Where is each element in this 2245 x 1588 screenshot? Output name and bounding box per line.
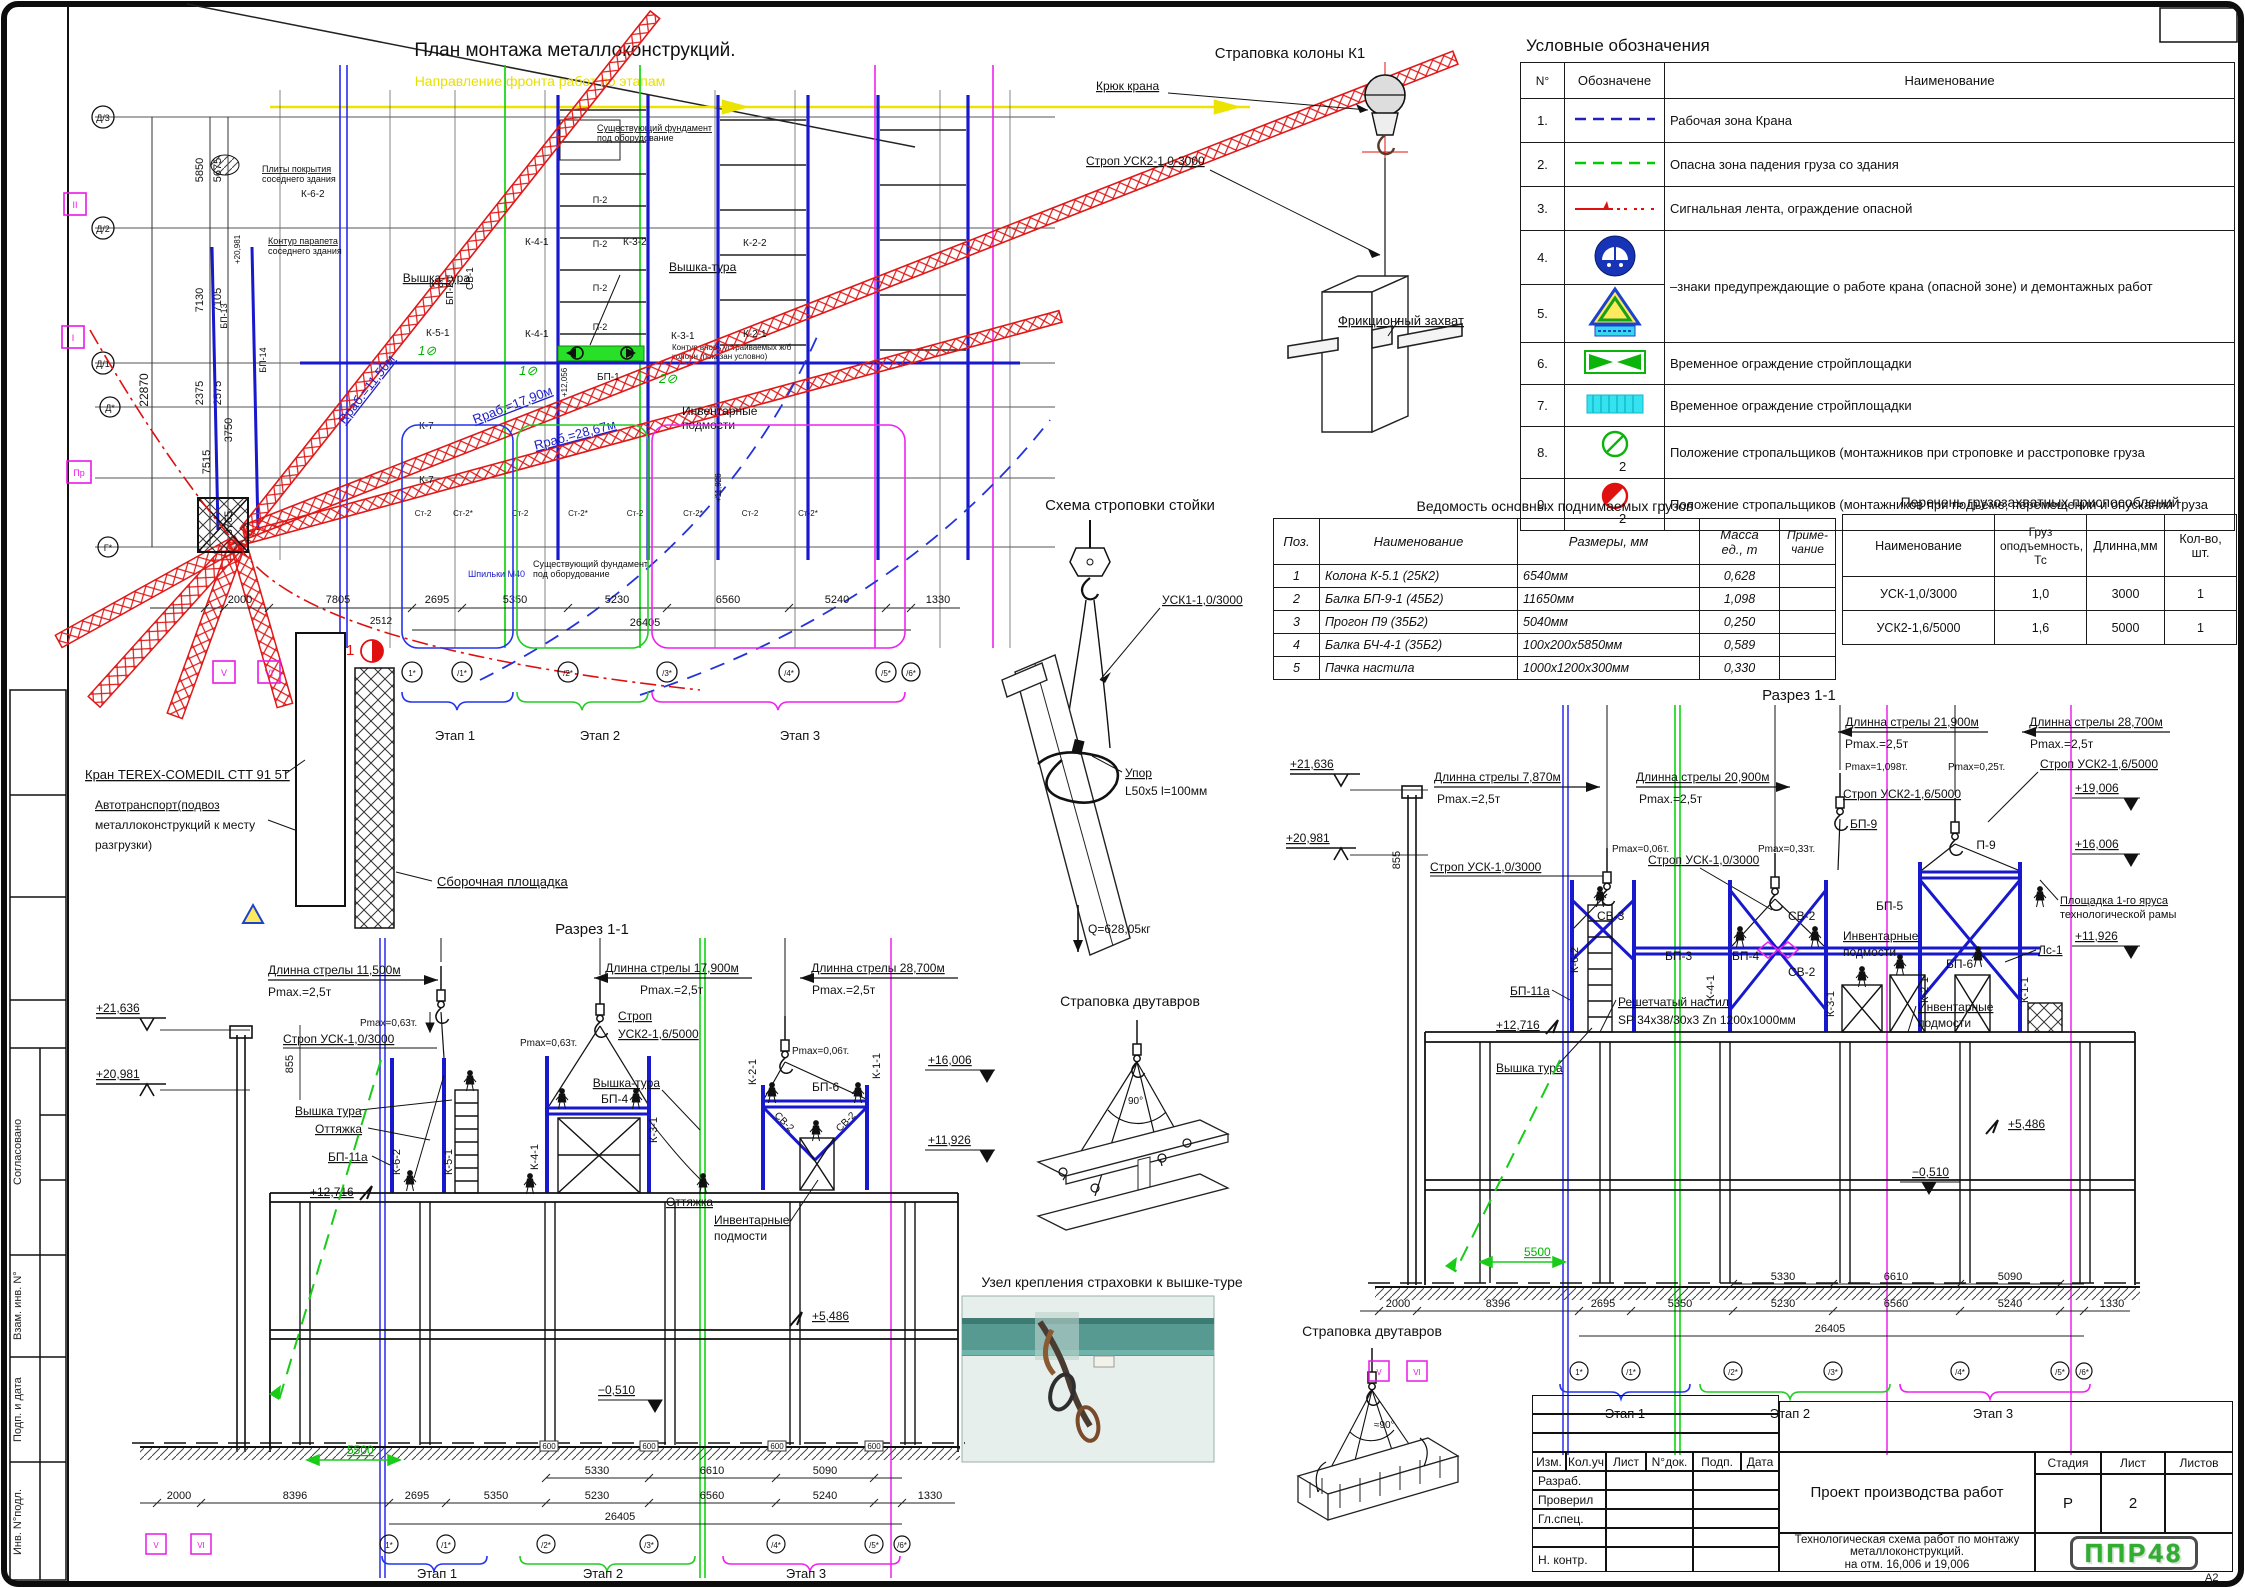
member-label: К-5-1 [426,328,450,339]
dim-label: 7130 [194,288,206,312]
axis-bubble: Д/3 [96,113,110,123]
note-plates: соседнего здания [262,174,336,184]
foot-tag: 600 [867,1442,881,1451]
pmax-label: Pmax=0,06т. [792,1046,849,1057]
member-label: СВ-2 [834,1110,858,1134]
tb-row-nkontr: Н. контр. [1532,1547,1606,1572]
dim-label: 5350 [1668,1298,1692,1310]
sling-label: Строп УСК2-1,6/5000 [2040,757,2158,771]
elevation-label: −0,510 [598,1383,635,1397]
tb-col-list: Лист [1606,1452,1646,1471]
member-label: К-4-1 [529,1144,541,1170]
platform-label: Площадка 1-го яруса [2060,895,2169,907]
table-cell: 1 [2165,611,2237,645]
diagram-title: Страповка двутавров [1060,993,1200,1009]
drawing-sheet: План монтажа металлоконструкций. Направл… [0,0,2245,1588]
dim-label: 855 [1391,851,1403,869]
stage-label: Этап 1 [417,1566,457,1581]
member-label: БП-3 [1665,949,1692,963]
dim-label: 5350 [503,594,527,606]
member-label: БП-4 [601,1092,628,1106]
boom-label: Длинна стрелы 28,700м [2029,715,2162,729]
member-label: БП-11а [1510,984,1550,998]
axis-bubble: /4* [1955,1368,1965,1377]
footing-label: Ст-2 [627,509,644,518]
pmax-label: Pmax=0,63т. [520,1038,577,1049]
section-left: Разрез 1-1 +21,636 +20,981 855 Длинна ст… [96,921,995,1581]
dim-label: 5500 [347,1443,374,1457]
tb-col-podp: Подп. [1693,1452,1741,1471]
member-label: К-3-1 [648,1117,660,1143]
safety-node: Узел крепления страховки к вышке-туре [962,1274,1243,1462]
ppr48-logo: ППР48 [2070,1536,2199,1570]
work-zone-symbol [1573,113,1657,125]
axis-bubble: 1* [408,669,416,678]
dim-label: 6610 [700,1465,724,1477]
loads-table-title: Ведомость основных поднимаемых грузов [1273,498,1837,514]
dim-label: 1330 [926,594,950,606]
member-label: СВ-2 [1788,965,1816,979]
dim-label: 855 [284,1055,296,1073]
note-parapet: соседнего здания [268,246,342,256]
axis-bubble: /5* [2055,1368,2065,1377]
dim-label: 5240 [825,594,849,606]
warning-triangle [243,905,263,923]
member-label: К-7 [419,475,434,486]
dim-label: 5350 [484,1490,508,1502]
platform-label: технологической рамы [2060,909,2176,921]
table-cell: Балка БП-9-1 (45Б2) [1320,588,1518,611]
footing-label: Ст-2* [683,509,703,518]
dim-label: 5090 [813,1465,837,1477]
section-right-dims: 5330 6610 5090 2000 8396 2695 5350 5230 … [1386,1271,2124,1335]
member-label: БП-2 [445,282,456,305]
dim-label: 5330 [585,1465,609,1477]
stamp-inv-podl: Инв. N°подл. [12,1466,38,1578]
scaffold-label: подмости [1843,945,1896,959]
legend-row-num: 8. [1521,427,1565,479]
member-label: К-3-1 [671,331,695,342]
footing-label: Ст-2 [742,509,759,518]
bundle-sling-diagram: Страповка двутавров ≈90° [1298,1323,1458,1520]
dim-label: 2512 [370,616,393,627]
legend-row-name: Положение стропальщиков (монтажников при… [1665,427,2235,479]
table-cell: 1000х1200х300мм [1518,657,1700,680]
member-label: К-2-2 [743,238,767,249]
col-header: Длинна,мм [2087,515,2165,577]
tower-label: Вышка-тура [593,1076,661,1090]
legend-row-name: Временное ограждение стройплощадки [1665,343,2235,385]
tower-label: Вышка-тура [403,271,471,285]
table-cell: Балка БЧ-4-1 (35Б2) [1320,634,1518,657]
axis-bubble: II [72,200,77,210]
dim-label: 3750 [223,418,235,442]
member-label: К-4-1 [525,329,549,340]
table-cell: 1,6 [1995,611,2087,645]
dim-total-label: 26405 [630,617,661,629]
truck-note: металлоконструкций к месту [95,818,255,832]
section-right: Разрез 1-1 +21,636 +20,981 855 Длинна ст… [1286,687,2176,1455]
pmax-label: Pmax.=2,5т [1639,792,1703,806]
table-cell: 2 [1274,588,1320,611]
table-cell: Прогон П9 (35Б2) [1320,611,1518,634]
sling-label: Строп УСК-1,0/3000 [1648,853,1760,867]
foot-tag: 600 [542,1442,556,1451]
col-header: Размеры, мм [1518,519,1700,565]
axis-bubble: V [153,1541,159,1550]
tb-row-razrab: Разраб. [1532,1471,1606,1490]
dim-label: 8396 [1486,1298,1510,1310]
sling-stand-diagram: Схема строповки стойки УСК1-1,0/3000 Упо… [1002,497,1243,955]
col-header: Поз. [1274,519,1320,565]
foot-tag: 600 [642,1442,656,1451]
note-parapet: Контур парапета [268,236,338,246]
elevation-label: +5,486 [812,1309,849,1323]
foot-tag: 600 [770,1442,784,1451]
elevation-label: +5,486 [2008,1117,2045,1131]
table-cell: 5000 [2087,611,2165,645]
member-label: БП-6 [1946,957,1973,971]
tb-list-label: Лист [2101,1452,2165,1474]
section-left-axes: V VI 1* /1* /2* /3* /4* /5* /6* [146,1534,910,1554]
member-label: БП-6 [812,1080,839,1094]
axis-bubble: /4* [784,669,794,678]
stage-label: Этап 3 [780,728,820,743]
legend-col-name: Наименование [1665,63,2235,99]
table-cell: 3 [1274,611,1320,634]
axis-bubble: /2* [1728,1368,1738,1377]
section-cut-mark: 1 [346,642,354,659]
sling-column-diagram: Страповка колоны К1 Крюк крана Строп УСК… [1086,45,1464,432]
col-header: Наименование [1320,519,1518,565]
legend-row-num: 5. [1521,285,1565,343]
footing-label: Ст-2* [568,509,588,518]
stamp-soglasovano: Согласовано [12,1052,38,1252]
tb-subtitle: Технологическая схема работ по монтажу [1795,1534,2020,1547]
footing-label: Ст-2* [798,509,818,518]
elev-tag: +20,981 [233,234,242,264]
truck-note: разгрузки) [95,838,152,852]
stop-label: Упор [1125,766,1152,780]
table-cell: 0,250 [1700,611,1780,634]
member-label: БП-14 [258,347,268,372]
tb-doc-title: Проект производства работ [1779,1452,2035,1533]
boom-label: Длинна стрелы 28,700м [811,961,944,975]
table-cell: 5 [1274,657,1320,680]
legend-col-sym: Обозначене [1565,63,1665,99]
sling-label: УСК1-1,0/3000 [1162,593,1243,607]
pmax-label: Pmax.=2,5т [640,983,704,997]
tb-col-data: Дата [1741,1452,1779,1471]
axis-bubble: Г* [104,543,113,553]
dim-label: 5090 [1998,1271,2022,1283]
scaffold-label: Инвентарные [682,404,758,418]
member-label: К-5-1 [443,1149,455,1175]
note-foundation-2: Существующий фундамент [533,559,648,569]
table-cell: Колона К-5.1 (25К2) [1320,565,1518,588]
member-label: П-2 [593,195,607,205]
diagram-title: Страповка колоны К1 [1215,45,1366,62]
pmax-label: Pmax=0,63т. [360,1018,417,1029]
note-foundation: Существующий фундамент [597,123,712,133]
legend-row-name: Рабочая зона Крана [1665,99,2235,143]
signal-tape-symbol [1573,199,1657,215]
dim-label: 6560 [716,594,740,606]
boom-label: Длинна стрелы 21,900м [1845,715,1978,729]
scaffold-label: подмости [1918,1016,1971,1030]
note-plates: Плиты покрытия [262,164,331,174]
section-title: Разрез 1-1 [1762,687,1836,704]
section-title: Разрез 1-1 [555,921,629,938]
dim-label: 2000 [1386,1298,1410,1310]
axis-bubble: /5* [881,669,891,678]
member-label: К-7 [419,421,434,432]
scaffold-label: Инвентарные [1843,929,1919,943]
axis-bubble: /6* [897,1541,907,1550]
loads-table: Ведомость основных поднимаемых грузов По… [1273,498,1837,680]
elevation-label: +12,716 [1496,1018,1540,1032]
tb-col-ndoc: N°док. [1646,1452,1693,1471]
safety-node-photo [962,1296,1214,1462]
table-cell: 1,0 [1995,577,2087,611]
stamp-vzam-inv: Взам. инв. N° [12,1258,38,1354]
tb-col-izm: Изм. [1532,1452,1566,1471]
stage-label: Этап 1 [435,728,475,743]
tower-label: Вышка тура [295,1104,362,1118]
axis-bubble: /4* [771,1541,781,1550]
dim-label: 6560 [700,1490,724,1502]
table-cell: 6540мм [1518,565,1700,588]
axis-bubble: VI [265,668,274,678]
dim-label: 1330 [918,1490,942,1502]
assembly-area-hatch [355,668,394,928]
legend-row-num: 3. [1521,187,1565,231]
member-label: К-3-1 [1825,991,1837,1017]
dim-label: 5230 [605,594,629,606]
pmax-label: Pmax.=2,5т [812,983,876,997]
pmax-label: Pmax.=2,5т [1437,792,1501,806]
member-label: К-6-2 [391,1149,403,1175]
dim-label: 2695 [425,594,449,606]
boom-label: Длинна стрелы 11,500м [268,963,401,977]
legend-row-name: Временное ограждение стройплощадки [1665,385,2235,427]
fence-symbol-green [1583,349,1647,375]
axis-bubble: /3* [662,669,672,678]
legend-row-num: 1. [1521,99,1565,143]
rigger-count: 2 [1619,459,1626,473]
legend-title: Условные обозначения [1526,36,2236,56]
member-label: БП-5 [1876,899,1903,913]
boom-label: Длинна стрелы 20,900м [1636,770,1769,784]
dim-label: 5240 [813,1490,837,1502]
table-cell: 1 [1274,565,1320,588]
dim-label: 2375 [194,381,206,405]
crane-sign-symbol [1592,233,1638,279]
plan-view: План монтажа металлоконструкций. Направл… [55,4,1458,928]
col-header: Груз [2029,525,2053,539]
member-label: Лс-1 [2038,943,2063,957]
axis-bubble: 1* [1575,1368,1583,1377]
member-label: БП-4 [1732,949,1759,963]
angle-label: 90° [1128,1096,1143,1107]
member-label: СВ-2 [1788,909,1816,923]
sling-label: Строп УСК-1,0/3000 [283,1032,395,1046]
table-cell: 4 [1274,634,1320,657]
member-label: К-4-1 [525,237,549,248]
crane-name: Кран TEREX-COMEDIL CTT 91 5T [85,767,290,782]
legend-row-name: Опасна зона падения груза со здания [1665,143,2235,187]
pmax-label: Pmax.=2,5т [268,985,332,999]
rigger-position-symbol: 2 [1598,429,1632,473]
member-label: СВ-2 [772,1110,796,1134]
stage-label: Этап 2 [580,728,620,743]
dim-label: 5230 [1771,1298,1795,1310]
rigging-table-title: Перечень грузозахватных приспособлений [1842,494,2238,510]
member-label: К-3-2 [623,237,647,248]
dim-label: 6560 [1884,1298,1908,1310]
sling-label: Строп УСК-1,0/3000 [1430,860,1542,874]
elevation-label: +16,006 [2075,837,2119,851]
table-cell: 100х200х5850мм [1518,634,1700,657]
elevation-label: +11,926 [928,1133,971,1147]
danger-zone-symbol [1573,157,1657,169]
work-zone-arc [640,420,1050,695]
axis-bubble: /6* [906,669,916,678]
axis-bubble: I [72,333,75,343]
elevation-label: +19,006 [2075,781,2119,795]
axis-bubble: /2* [563,669,573,678]
boom-label: Длинна стрелы 7,870м [1434,770,1561,784]
member-label: П-9 [1976,838,1996,852]
dim-label: 2000 [228,594,252,606]
table-cell: 1 [2165,577,2237,611]
dim-label: 5500 [1524,1245,1551,1259]
axis-bubble: V [1376,1368,1382,1377]
axis-bubble: VI [1413,1368,1421,1377]
scaffold-label: подмости [714,1229,767,1243]
fence-symbol-cyan [1583,392,1647,416]
member-label: БП-13 [219,303,229,328]
stage-mark: 2⊘ [658,371,677,386]
photo-title: Узел крепления страховки к вышке-туре [981,1274,1243,1290]
dim-label: 2000 [167,1490,191,1502]
tb-row-glspec: Гл.спец. [1532,1509,1606,1528]
stop-label: L50x5 l=100мм [1125,784,1207,798]
table-cell: 0,628 [1700,565,1780,588]
plan-direction-label: Направление фронта работ по этапам [415,73,666,89]
elevation-label: +21,636 [96,1001,140,1015]
dim-label: 6610 [1884,1271,1908,1283]
dim-label: 7805 [326,594,350,606]
axis-bubble: Д/2 [96,224,110,234]
col-header: Наименование [1843,515,1995,577]
dim-label: 5230 [585,1490,609,1502]
elevation-label: +20,981 [96,1067,140,1081]
pmax-label: Pmax=0,25т. [1948,762,2005,773]
sling-label: Строп УСК2-1,0-3000 [1086,154,1205,168]
axis-bubble: Д* [105,403,115,413]
member-label: БП-9 [1850,817,1877,831]
legend-row-name: –знаки предупреждающие о работе крана (о… [1665,231,2235,343]
member-label: К-2-1 [743,329,767,340]
sling-label: УСК2-1,6/5000 [618,1027,699,1041]
truck-outline [296,633,345,906]
table-cell: 3000 [2087,577,2165,611]
legend-row-num: 6. [1521,343,1565,385]
pmax-label: Pmax.=2,5т [1845,737,1909,751]
axis-bubble: /5* [869,1541,879,1550]
member-label: К-2-1 [747,1059,759,1085]
stage-label: Этап 3 [786,1566,826,1581]
legend-col-num: N° [1521,63,1565,99]
tb-stadia-value: Р [2035,1474,2101,1533]
axis-bubble: Пр [73,468,84,478]
loads-table-grid: Поз. Наименование Размеры, мм Массаед., … [1273,518,1836,680]
elev-tag: +12,056 [560,367,569,397]
elev-tag: +11,926 [714,473,723,502]
rigging-table-grid: Наименование Грузоподъемность,Тс Длинна,… [1842,514,2237,645]
sling-label: Строп [618,1009,652,1023]
sheet-format: А2 [2205,1572,2218,1584]
note-foundation-2: под оборудование [533,569,610,579]
dim-label: 1330 [2100,1298,2124,1310]
axis-bubble: /1* [457,669,467,678]
col-header: Кол-во, шт. [2165,515,2237,577]
elevation-label: −0,510 [1912,1165,1949,1179]
axis-bubble: /3* [1828,1368,1838,1377]
scaffold-label: Инвентарные [714,1213,790,1227]
axis-bubble: V [221,668,227,678]
weight-label: Q=628,05кг [1088,922,1151,936]
col-header: Приме- [1787,528,1828,542]
guy-label: Оттяжка [315,1122,362,1136]
member-label: П-2 [593,322,607,332]
assembly-label: Сборочная площадка [437,874,569,889]
member-label: СВ-3 [1597,909,1625,923]
legend-table: N° Обозначене Наименование 1. Рабочая зо… [1520,62,2235,531]
legend: Условные обозначения N° Обозначене Наиме… [1520,36,2236,531]
pmax-label: Pmax=1,098т. [1845,762,1908,773]
tb-listov-label: Листов [2165,1452,2233,1474]
member-label: БП-11а [328,1150,368,1164]
tb-row-proveril: Проверил [1532,1490,1606,1509]
tb-list-value: 2 [2101,1474,2165,1533]
stamp-podp-data: Подп. и дата [12,1360,38,1460]
member-label: К-1-1 [871,1053,883,1079]
plan-stage-zones [402,425,905,710]
axis-bubble: /3* [644,1541,654,1550]
table-cell: Пачка настила [1320,657,1518,680]
table-cell: 0,330 [1700,657,1780,680]
dim-total-label: 26405 [605,1511,636,1523]
diagram-title: Схема строповки стойки [1045,497,1215,514]
grab-label: Фрикционный захват [1338,313,1464,328]
dim-label: 2695 [405,1490,429,1502]
legend-row-num: 4. [1521,231,1565,285]
member-label: П-2 [593,283,607,293]
stage-mark: 1⊘ [519,363,537,378]
boom-label: Длинна стрелы 17,900м [605,961,738,975]
tb-col-koluch: Кол.уч [1566,1452,1606,1471]
footing-label: Ст-2 [415,509,432,518]
dim-label: 5850 [194,158,206,182]
legend-row-name: Сигнальная лента, ограждение опасной [1665,187,2235,231]
dim-label: 2695 [1591,1298,1615,1310]
member-label: БП-1 [597,372,620,383]
diagram-title: Страповка двутавров [1302,1323,1442,1339]
table-cell: 1,098 [1700,588,1780,611]
stage-mark: 1⊘ [418,343,436,358]
